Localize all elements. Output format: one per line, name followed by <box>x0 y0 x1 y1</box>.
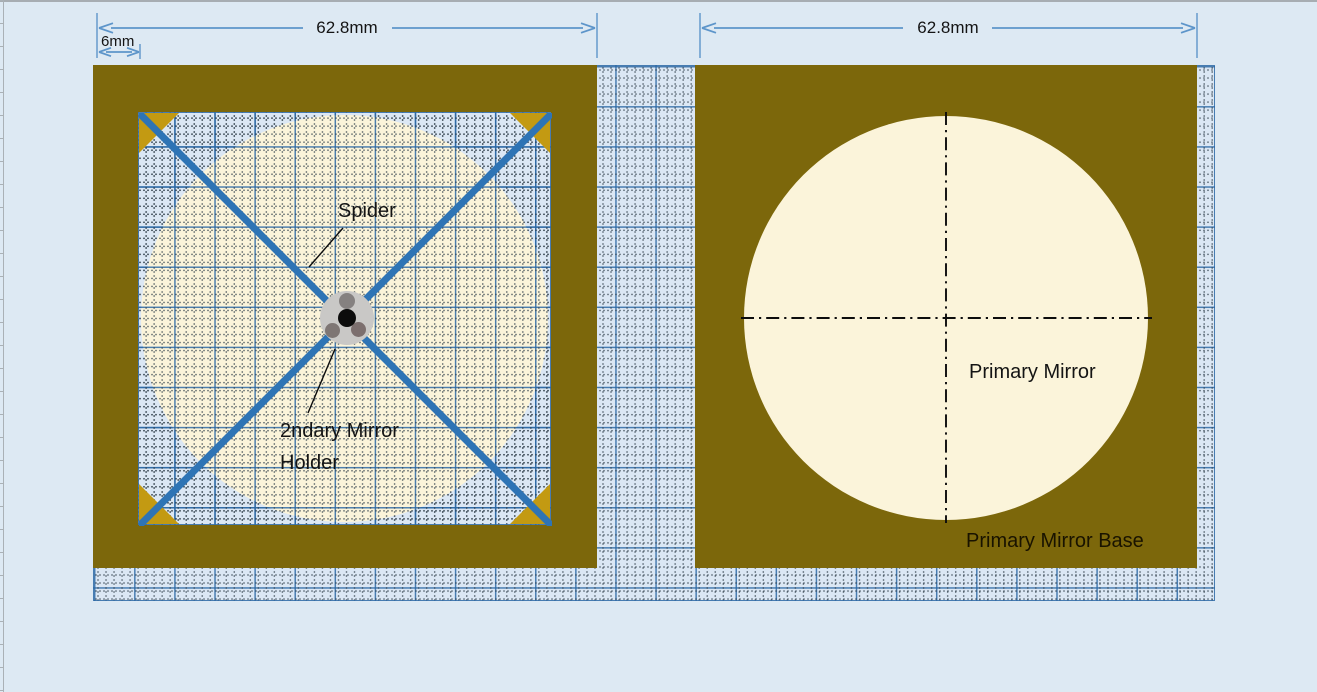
secondary-mirror-holder <box>320 291 374 345</box>
dimension-frame-thickness-label: 6mm <box>101 33 134 50</box>
left-ruler-ticks <box>0 0 4 692</box>
dimension-left-width-label: 62.8mm <box>287 18 407 38</box>
spider-label: Spider <box>338 200 396 223</box>
holder-screw-bottom-left <box>325 323 340 338</box>
primary-mirror-label: Primary Mirror <box>969 361 1096 384</box>
secondary-holder-label: 2ndary Mirror Holder <box>280 416 444 479</box>
dimension-right-width-label: 62.8mm <box>888 18 1008 38</box>
holder-center-hole <box>338 309 356 327</box>
window-top-edge <box>0 0 1317 2</box>
primary-mirror-disc <box>744 116 1148 520</box>
primary-mirror-base-label: Primary Mirror Base <box>966 530 1144 553</box>
holder-screw-top <box>339 293 355 309</box>
primary-mirror-base-plate <box>695 65 1197 568</box>
drawing-canvas: 62.8mm 6mm 62.8mm Spider 2ndary Mirror H… <box>0 0 1317 692</box>
